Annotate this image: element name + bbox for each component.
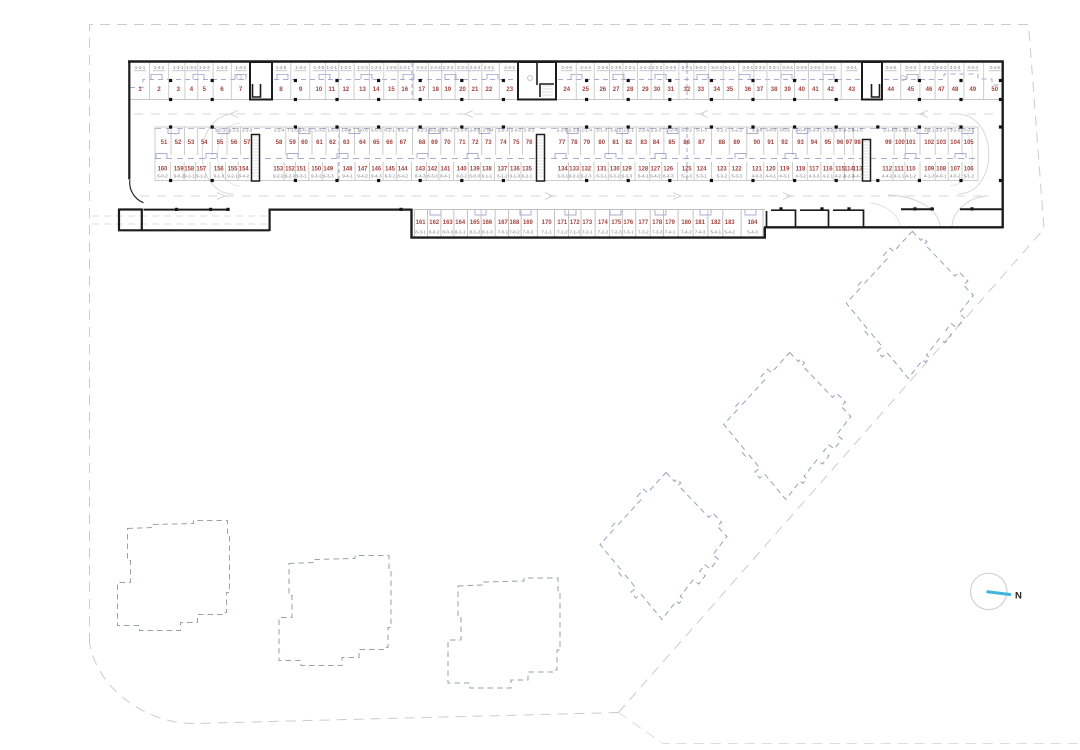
svg-text:1-0-4: 1-0-4 bbox=[341, 128, 352, 134]
svg-text:8-4-3: 8-4-3 bbox=[415, 174, 426, 180]
svg-text:3-4-1: 3-4-1 bbox=[846, 65, 857, 71]
svg-text:134: 134 bbox=[558, 165, 568, 172]
svg-text:6-0-2: 6-0-2 bbox=[157, 174, 168, 180]
svg-text:4-1-3: 4-1-3 bbox=[924, 174, 935, 180]
svg-text:157: 157 bbox=[196, 165, 206, 172]
svg-text:116: 116 bbox=[823, 165, 833, 172]
svg-text:93: 93 bbox=[797, 139, 804, 146]
svg-text:149: 149 bbox=[323, 165, 333, 172]
svg-text:2-4-2: 2-4-2 bbox=[430, 65, 441, 71]
svg-text:5-0-3: 5-0-3 bbox=[711, 65, 722, 71]
svg-text:171: 171 bbox=[557, 219, 567, 226]
svg-text:162: 162 bbox=[429, 219, 439, 226]
svg-text:138: 138 bbox=[482, 165, 492, 172]
svg-text:8-3-2: 8-3-2 bbox=[442, 128, 453, 134]
svg-text:111: 111 bbox=[894, 165, 904, 172]
svg-text:9-3-2: 9-3-2 bbox=[311, 174, 322, 180]
svg-text:1-4-5: 1-4-5 bbox=[276, 65, 287, 71]
svg-text:1-1-2: 1-1-2 bbox=[229, 128, 240, 134]
svg-text:53: 53 bbox=[188, 139, 195, 146]
svg-text:1-3-2: 1-3-2 bbox=[314, 128, 325, 134]
svg-text:8-0-2: 8-0-2 bbox=[429, 230, 440, 236]
svg-text:8-4-2: 8-4-2 bbox=[239, 174, 250, 180]
svg-text:106: 106 bbox=[964, 165, 974, 172]
svg-text:173: 173 bbox=[582, 219, 592, 226]
svg-text:125: 125 bbox=[682, 165, 692, 172]
svg-text:50: 50 bbox=[991, 86, 998, 93]
svg-text:6-2-1: 6-2-1 bbox=[522, 174, 533, 180]
svg-text:7-2-1: 7-2-1 bbox=[582, 230, 593, 236]
svg-text:3-4-2: 3-4-2 bbox=[825, 65, 836, 71]
svg-text:123: 123 bbox=[717, 165, 727, 172]
svg-text:70: 70 bbox=[444, 139, 451, 146]
svg-text:75: 75 bbox=[513, 139, 520, 146]
svg-text:2-1-1: 2-1-1 bbox=[623, 128, 634, 134]
svg-text:83: 83 bbox=[640, 139, 647, 146]
svg-text:108: 108 bbox=[936, 165, 946, 172]
svg-text:133: 133 bbox=[569, 165, 579, 172]
svg-text:24: 24 bbox=[563, 86, 570, 93]
svg-text:2-3-6: 2-3-6 bbox=[611, 65, 622, 71]
svg-text:141: 141 bbox=[441, 165, 451, 172]
svg-text:84: 84 bbox=[653, 139, 660, 146]
svg-text:103: 103 bbox=[936, 139, 946, 146]
svg-text:7-4-3: 7-4-3 bbox=[695, 230, 706, 236]
svg-text:105: 105 bbox=[964, 139, 974, 146]
svg-text:5-0-1: 5-0-1 bbox=[682, 65, 693, 71]
svg-text:7-2-2: 7-2-2 bbox=[598, 230, 609, 236]
svg-text:165: 165 bbox=[470, 219, 480, 226]
svg-text:5-1-3: 5-1-3 bbox=[696, 128, 707, 134]
svg-text:32: 32 bbox=[684, 86, 691, 93]
svg-text:3-1-3: 3-1-3 bbox=[895, 128, 906, 134]
svg-text:1-2-5: 1-2-5 bbox=[386, 65, 397, 71]
svg-text:107: 107 bbox=[950, 165, 960, 172]
svg-text:44: 44 bbox=[887, 86, 894, 93]
svg-text:153: 153 bbox=[273, 165, 283, 172]
svg-text:4-3-2: 4-3-2 bbox=[795, 174, 806, 180]
svg-text:100: 100 bbox=[895, 139, 905, 146]
svg-text:72: 72 bbox=[472, 139, 479, 146]
svg-text:5-4-3: 5-4-3 bbox=[747, 230, 758, 236]
svg-text:6-2-3: 6-2-3 bbox=[581, 174, 592, 180]
svg-text:23: 23 bbox=[506, 86, 513, 93]
svg-text:1-3-2: 1-3-2 bbox=[186, 65, 197, 71]
svg-text:5-1-2: 5-1-2 bbox=[964, 174, 975, 180]
svg-text:8-3-3: 8-3-3 bbox=[427, 174, 438, 180]
svg-text:57: 57 bbox=[244, 139, 251, 146]
svg-text:3-2-6: 3-2-6 bbox=[936, 128, 947, 134]
svg-text:174: 174 bbox=[598, 219, 608, 226]
svg-text:79: 79 bbox=[583, 139, 590, 146]
svg-text:2-0-5: 2-0-5 bbox=[470, 128, 481, 134]
svg-text:1-4-4: 1-4-4 bbox=[235, 65, 246, 71]
svg-text:3-3-3: 3-3-3 bbox=[809, 128, 820, 134]
svg-text:65: 65 bbox=[373, 139, 380, 146]
svg-text:47: 47 bbox=[938, 86, 945, 93]
svg-text:6: 6 bbox=[220, 86, 224, 93]
svg-text:63: 63 bbox=[343, 139, 350, 146]
svg-text:132: 132 bbox=[581, 165, 591, 172]
svg-text:2-2-1: 2-2-1 bbox=[625, 65, 636, 71]
svg-text:68: 68 bbox=[419, 139, 426, 146]
svg-text:38: 38 bbox=[771, 86, 778, 93]
svg-text:5-2-1: 5-2-1 bbox=[717, 128, 728, 134]
svg-text:121: 121 bbox=[752, 165, 762, 172]
svg-text:112: 112 bbox=[882, 165, 892, 172]
svg-text:67: 67 bbox=[400, 139, 407, 146]
svg-text:5-3-2: 5-3-2 bbox=[717, 174, 728, 180]
svg-text:6-0-3: 6-0-3 bbox=[371, 128, 382, 134]
svg-text:1-0-5: 1-0-5 bbox=[357, 128, 368, 134]
svg-text:9-1-3: 9-1-3 bbox=[214, 174, 225, 180]
svg-text:4-4-3: 4-4-3 bbox=[852, 174, 863, 180]
svg-text:2-0-1: 2-0-1 bbox=[524, 128, 535, 134]
svg-text:16: 16 bbox=[401, 86, 408, 93]
svg-text:101: 101 bbox=[906, 139, 916, 146]
svg-text:73: 73 bbox=[485, 139, 492, 146]
svg-text:8-4-1: 8-4-1 bbox=[440, 174, 451, 180]
svg-text:89: 89 bbox=[733, 139, 740, 146]
svg-text:1-1-4: 1-1-4 bbox=[274, 128, 285, 134]
svg-text:5-2-3: 5-2-3 bbox=[681, 174, 692, 180]
svg-text:6-0-2: 6-0-2 bbox=[456, 174, 467, 180]
svg-text:1-1-1: 1-1-1 bbox=[215, 128, 226, 134]
svg-text:3-3-1: 3-3-1 bbox=[743, 65, 754, 71]
svg-text:166: 166 bbox=[482, 219, 492, 226]
svg-text:11: 11 bbox=[328, 86, 335, 93]
svg-text:8-2-3: 8-2-3 bbox=[417, 128, 428, 134]
svg-text:69: 69 bbox=[431, 139, 438, 146]
svg-text:2-0-2: 2-0-2 bbox=[511, 128, 522, 134]
svg-text:3-3-2: 3-3-2 bbox=[823, 128, 834, 134]
svg-text:7-1-5: 7-1-5 bbox=[287, 128, 298, 134]
svg-text:1-2-2: 1-2-2 bbox=[341, 65, 352, 71]
svg-text:182: 182 bbox=[711, 219, 721, 226]
svg-text:28: 28 bbox=[627, 86, 634, 93]
svg-text:27: 27 bbox=[613, 86, 620, 93]
svg-text:6-3-3: 6-3-3 bbox=[622, 174, 633, 180]
svg-text:175: 175 bbox=[611, 219, 621, 226]
svg-text:61: 61 bbox=[316, 139, 323, 146]
svg-text:17: 17 bbox=[418, 86, 425, 93]
svg-text:4: 4 bbox=[190, 86, 194, 93]
svg-text:80: 80 bbox=[598, 139, 605, 146]
svg-text:151: 151 bbox=[296, 165, 306, 172]
svg-text:8-1-1: 8-1-1 bbox=[455, 230, 466, 236]
svg-text:9-2-2: 9-2-2 bbox=[273, 174, 284, 180]
svg-text:1-3-4: 1-3-4 bbox=[295, 65, 306, 71]
svg-text:161: 161 bbox=[416, 219, 426, 226]
svg-text:6-1-2: 6-1-2 bbox=[497, 174, 508, 180]
svg-text:2-1-5: 2-1-5 bbox=[569, 128, 580, 134]
svg-text:1-0-3: 1-0-3 bbox=[327, 128, 338, 134]
svg-text:42: 42 bbox=[827, 86, 834, 93]
svg-text:3-2-2: 3-2-2 bbox=[936, 65, 947, 71]
svg-text:3-0-5: 3-0-5 bbox=[779, 128, 790, 134]
svg-text:37: 37 bbox=[757, 86, 764, 93]
svg-text:39: 39 bbox=[784, 86, 791, 93]
svg-text:127: 127 bbox=[651, 165, 661, 172]
svg-text:2-9-3: 2-9-3 bbox=[498, 128, 509, 134]
svg-text:31: 31 bbox=[667, 86, 674, 93]
svg-text:10: 10 bbox=[316, 86, 323, 93]
svg-text:86: 86 bbox=[683, 139, 690, 146]
svg-text:156: 156 bbox=[214, 165, 224, 172]
svg-text:2-2-6: 2-2-6 bbox=[638, 128, 649, 134]
svg-text:3: 3 bbox=[177, 86, 181, 93]
svg-text:18: 18 bbox=[432, 86, 439, 93]
svg-text:6-1-1: 6-1-1 bbox=[482, 174, 493, 180]
svg-text:7-0-1: 7-0-1 bbox=[498, 230, 509, 236]
svg-text:81: 81 bbox=[612, 139, 619, 146]
svg-text:19: 19 bbox=[444, 86, 451, 93]
svg-text:147: 147 bbox=[358, 165, 368, 172]
svg-text:85: 85 bbox=[668, 139, 675, 146]
svg-text:56: 56 bbox=[231, 139, 238, 146]
svg-text:159: 159 bbox=[174, 165, 184, 172]
svg-text:109: 109 bbox=[924, 165, 934, 172]
svg-text:154: 154 bbox=[239, 165, 249, 172]
svg-text:74: 74 bbox=[500, 139, 507, 146]
svg-text:3-2-5: 3-2-5 bbox=[950, 128, 961, 134]
svg-text:8-1-2: 8-1-2 bbox=[470, 230, 481, 236]
svg-text:7-0-2: 7-0-2 bbox=[509, 230, 520, 236]
svg-text:124: 124 bbox=[697, 165, 707, 172]
svg-text:6-0-1: 6-0-1 bbox=[385, 174, 396, 180]
svg-text:14: 14 bbox=[373, 86, 380, 93]
svg-text:1-2-3: 1-2-3 bbox=[357, 65, 368, 71]
svg-text:7-2-3: 7-2-3 bbox=[611, 230, 622, 236]
svg-text:36: 36 bbox=[744, 86, 751, 93]
svg-text:90: 90 bbox=[754, 139, 761, 146]
svg-text:144: 144 bbox=[398, 165, 408, 172]
svg-text:102: 102 bbox=[924, 139, 934, 146]
svg-text:8-3-1: 8-3-1 bbox=[415, 230, 426, 236]
svg-text:3-4-4: 3-4-4 bbox=[967, 65, 978, 71]
svg-text:2-3-1: 2-3-1 bbox=[399, 65, 410, 71]
svg-text:7-3-2: 7-3-2 bbox=[638, 230, 649, 236]
svg-text:60: 60 bbox=[301, 139, 308, 146]
svg-text:43: 43 bbox=[848, 86, 855, 93]
svg-text:2-3-3: 2-3-3 bbox=[443, 65, 454, 71]
svg-text:5: 5 bbox=[202, 86, 206, 93]
svg-text:1-2-1: 1-2-1 bbox=[326, 65, 337, 71]
svg-text:2-3-4: 2-3-4 bbox=[457, 65, 468, 71]
svg-text:3-1-2: 3-1-2 bbox=[905, 128, 916, 134]
svg-text:58: 58 bbox=[276, 139, 283, 146]
svg-text:2-4-6: 2-4-6 bbox=[561, 65, 572, 71]
svg-text:9-0-2: 9-0-2 bbox=[174, 174, 185, 180]
svg-text:3-3-2: 3-3-2 bbox=[755, 65, 766, 71]
svg-text:3-2-4: 3-2-4 bbox=[752, 128, 763, 134]
svg-text:179: 179 bbox=[665, 219, 675, 226]
svg-text:25: 25 bbox=[582, 86, 589, 93]
svg-text:4-0-3: 4-0-3 bbox=[752, 174, 763, 180]
svg-text:4-4-1: 4-4-1 bbox=[765, 174, 776, 180]
svg-text:2-4-4: 2-4-4 bbox=[580, 65, 591, 71]
svg-text:168: 168 bbox=[510, 219, 520, 226]
svg-text:9: 9 bbox=[299, 86, 303, 93]
svg-text:6-3-1: 6-3-1 bbox=[596, 174, 607, 180]
svg-text:2-4-3: 2-4-3 bbox=[470, 65, 481, 71]
svg-text:7-1-3: 7-1-3 bbox=[570, 230, 581, 236]
svg-text:160: 160 bbox=[158, 165, 168, 172]
svg-text:7-1-2: 7-1-2 bbox=[557, 230, 568, 236]
svg-text:2-4-5: 2-4-5 bbox=[666, 65, 677, 71]
svg-text:6-3-2: 6-3-2 bbox=[609, 174, 620, 180]
svg-text:4-3-1: 4-3-1 bbox=[779, 174, 790, 180]
svg-text:6-2-2: 6-2-2 bbox=[569, 174, 580, 180]
svg-text:142: 142 bbox=[428, 165, 438, 172]
svg-text:45: 45 bbox=[907, 86, 914, 93]
svg-text:3-3-5: 3-3-5 bbox=[796, 65, 807, 71]
svg-text:1: 1 bbox=[138, 86, 142, 93]
svg-text:130: 130 bbox=[610, 165, 620, 172]
svg-text:15: 15 bbox=[388, 86, 395, 93]
svg-text:181: 181 bbox=[695, 219, 705, 226]
svg-text:7: 7 bbox=[239, 86, 243, 93]
svg-text:167: 167 bbox=[498, 219, 508, 226]
svg-text:9-4-3: 9-4-3 bbox=[371, 174, 382, 180]
svg-text:3-0-4: 3-0-4 bbox=[795, 128, 806, 134]
svg-text:9-1-1: 9-1-1 bbox=[184, 174, 195, 180]
svg-text:3-3-6: 3-3-6 bbox=[810, 65, 821, 71]
svg-text:8-3-1: 8-3-1 bbox=[429, 128, 440, 134]
svg-text:13: 13 bbox=[359, 86, 366, 93]
svg-text:4-0-1: 4-0-1 bbox=[936, 174, 947, 180]
svg-text:7-3-1: 7-3-1 bbox=[623, 230, 634, 236]
svg-text:183: 183 bbox=[725, 219, 735, 226]
svg-text:1-2-4: 1-2-4 bbox=[371, 65, 382, 71]
svg-text:2-4-1: 2-4-1 bbox=[484, 65, 495, 71]
svg-text:6-4-3: 6-4-3 bbox=[663, 174, 674, 180]
svg-text:6-3-1: 6-3-1 bbox=[558, 174, 569, 180]
svg-text:131: 131 bbox=[597, 165, 607, 172]
svg-text:1-4-1: 1-4-1 bbox=[135, 65, 146, 71]
svg-text:5-4-1: 5-4-1 bbox=[711, 230, 722, 236]
svg-text:5-1-1: 5-1-1 bbox=[725, 65, 736, 71]
svg-text:9-3-3: 9-3-3 bbox=[323, 174, 334, 180]
svg-text:N: N bbox=[1015, 591, 1022, 602]
svg-text:52: 52 bbox=[175, 139, 182, 146]
svg-text:88: 88 bbox=[718, 139, 725, 146]
svg-text:7-0-3: 7-0-3 bbox=[523, 230, 534, 236]
svg-text:3-2-3: 3-2-3 bbox=[950, 65, 961, 71]
svg-text:82: 82 bbox=[625, 139, 632, 146]
svg-text:9-4-2: 9-4-2 bbox=[357, 174, 368, 180]
svg-text:2-1-6: 2-1-6 bbox=[557, 128, 568, 134]
svg-text:91: 91 bbox=[767, 139, 774, 146]
svg-text:9-2-1: 9-2-1 bbox=[227, 174, 238, 180]
svg-text:97: 97 bbox=[846, 139, 853, 146]
svg-text:1-3-1: 1-3-1 bbox=[173, 65, 184, 71]
svg-text:4-1-2: 4-1-2 bbox=[905, 174, 916, 180]
svg-text:135: 135 bbox=[522, 165, 532, 172]
svg-text:98: 98 bbox=[854, 139, 861, 146]
svg-text:128: 128 bbox=[638, 165, 648, 172]
svg-text:164: 164 bbox=[455, 219, 465, 226]
svg-text:5-2-2: 5-2-2 bbox=[731, 128, 742, 134]
svg-text:2-2-2: 2-2-2 bbox=[640, 65, 651, 71]
svg-text:33: 33 bbox=[697, 86, 704, 93]
svg-text:48: 48 bbox=[952, 86, 959, 93]
svg-text:54: 54 bbox=[201, 139, 208, 146]
svg-text:129: 129 bbox=[622, 165, 632, 172]
svg-text:184: 184 bbox=[748, 219, 758, 226]
svg-text:4-3-3: 4-3-3 bbox=[809, 174, 820, 180]
svg-text:59: 59 bbox=[289, 139, 296, 146]
svg-text:9-2-3: 9-2-3 bbox=[285, 174, 296, 180]
svg-text:9-1-2: 9-1-2 bbox=[196, 174, 207, 180]
svg-text:8-1-3: 8-1-3 bbox=[482, 230, 493, 236]
svg-text:6-1-3: 6-1-3 bbox=[510, 174, 521, 180]
svg-text:163: 163 bbox=[443, 219, 453, 226]
svg-text:2-2-4: 2-2-4 bbox=[666, 128, 677, 134]
svg-text:126: 126 bbox=[663, 165, 673, 172]
svg-text:64: 64 bbox=[359, 139, 366, 146]
svg-text:152: 152 bbox=[285, 165, 295, 172]
svg-text:1-4-2: 1-4-2 bbox=[154, 65, 165, 71]
svg-text:96: 96 bbox=[837, 139, 844, 146]
svg-text:21: 21 bbox=[472, 86, 479, 93]
svg-text:3-1-5: 3-1-5 bbox=[852, 128, 863, 134]
svg-text:7-4-1: 7-4-1 bbox=[665, 230, 676, 236]
svg-text:1-1-3: 1-1-3 bbox=[242, 128, 253, 134]
svg-text:1-3-3: 1-3-3 bbox=[199, 65, 210, 71]
svg-text:137: 137 bbox=[498, 165, 508, 172]
svg-text:26: 26 bbox=[599, 86, 606, 93]
svg-text:6-4-1: 6-4-1 bbox=[638, 174, 649, 180]
svg-text:8: 8 bbox=[279, 86, 283, 93]
svg-text:2-3-2: 2-3-2 bbox=[416, 65, 427, 71]
svg-text:94: 94 bbox=[811, 139, 818, 146]
svg-text:113: 113 bbox=[853, 165, 863, 172]
svg-text:78: 78 bbox=[571, 139, 578, 146]
svg-text:2: 2 bbox=[157, 86, 161, 93]
svg-text:177: 177 bbox=[638, 219, 648, 226]
svg-text:148: 148 bbox=[343, 165, 353, 172]
svg-text:20: 20 bbox=[459, 86, 466, 93]
svg-text:143: 143 bbox=[415, 165, 425, 172]
svg-text:8-0-3: 8-0-3 bbox=[442, 230, 453, 236]
svg-text:2-2-5: 2-2-5 bbox=[651, 128, 662, 134]
svg-text:92: 92 bbox=[781, 139, 788, 146]
svg-text:66: 66 bbox=[386, 139, 393, 146]
svg-text:41: 41 bbox=[812, 86, 819, 93]
svg-text:8-2-1: 8-2-1 bbox=[384, 128, 395, 134]
svg-text:3-1-4: 3-1-4 bbox=[883, 128, 894, 134]
svg-text:2-2-3: 2-2-3 bbox=[652, 65, 663, 71]
svg-text:7-1-1: 7-1-1 bbox=[541, 230, 552, 236]
svg-text:22: 22 bbox=[486, 86, 493, 93]
svg-text:6-4-2: 6-4-2 bbox=[650, 174, 661, 180]
svg-text:5-3-1: 5-3-1 bbox=[696, 174, 707, 180]
svg-text:158: 158 bbox=[184, 165, 194, 172]
svg-text:118: 118 bbox=[796, 165, 806, 172]
svg-text:55: 55 bbox=[217, 139, 224, 146]
svg-text:2-0-6: 2-0-6 bbox=[457, 128, 468, 134]
svg-text:145: 145 bbox=[385, 165, 395, 172]
svg-text:4-0-2: 4-0-2 bbox=[950, 174, 961, 180]
svg-text:139: 139 bbox=[470, 165, 480, 172]
svg-text:176: 176 bbox=[623, 219, 633, 226]
svg-text:3-4-3: 3-4-3 bbox=[905, 65, 916, 71]
svg-text:170: 170 bbox=[542, 219, 552, 226]
svg-text:169: 169 bbox=[523, 219, 533, 226]
svg-text:3-3-4: 3-3-4 bbox=[782, 65, 793, 71]
svg-text:6-0-3: 6-0-3 bbox=[469, 174, 480, 180]
